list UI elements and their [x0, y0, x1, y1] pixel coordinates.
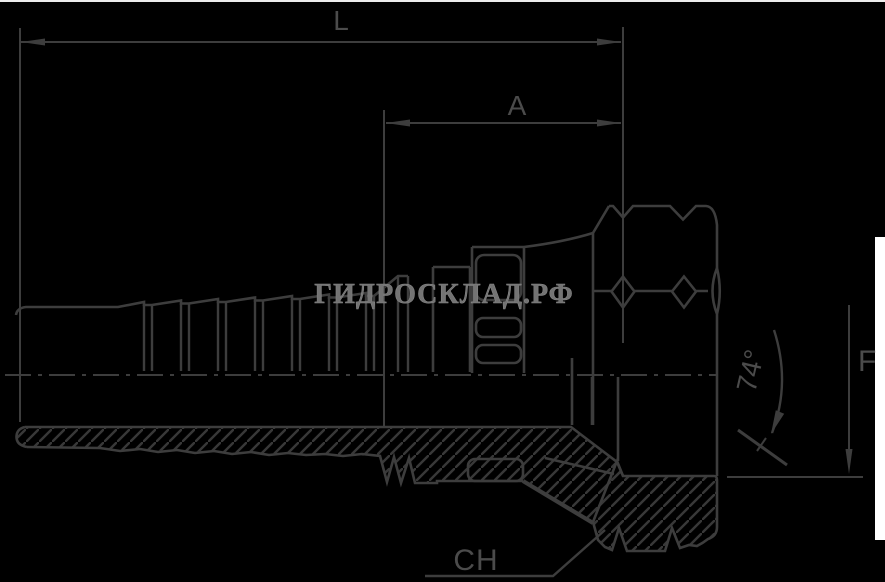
dim-label-A: A — [508, 90, 527, 121]
watermark-text: ГИДРОСКЛАД.РФ — [314, 279, 573, 310]
drawing-canvas: L A F 74° CH ГИДРОСКЛАД.РФ — [0, 0, 885, 582]
fitting-diagram: L A F 74° CH ГИДРОСКЛАД.РФ — [0, 0, 885, 582]
hex-size-label: CH — [453, 544, 498, 577]
dim-label-L: L — [333, 5, 349, 36]
dim-label-F: F — [858, 345, 876, 378]
top-edge-line — [0, 0, 885, 2]
right-edge-strip — [875, 237, 885, 540]
